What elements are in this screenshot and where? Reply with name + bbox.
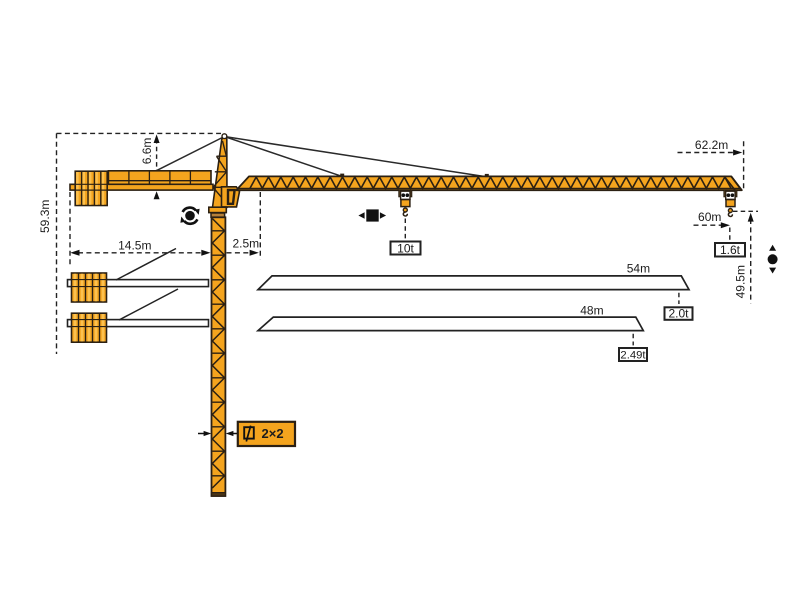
svg-text:14.5m: 14.5m: [118, 239, 151, 253]
svg-text:1.6t: 1.6t: [720, 243, 741, 257]
svg-text:59.3m: 59.3m: [38, 200, 52, 233]
svg-text:48m: 48m: [580, 303, 603, 317]
svg-text:54m: 54m: [627, 262, 650, 276]
svg-text:2×2: 2×2: [262, 426, 284, 441]
svg-text:2.5m: 2.5m: [232, 236, 259, 250]
svg-text:2.49t: 2.49t: [620, 349, 646, 361]
svg-text:6.6m: 6.6m: [140, 138, 154, 165]
svg-text:62.2m: 62.2m: [695, 138, 728, 152]
svg-text:10t: 10t: [397, 241, 414, 255]
svg-text:60m: 60m: [698, 210, 721, 224]
svg-text:2.0t: 2.0t: [668, 307, 689, 321]
svg-text:49.5m: 49.5m: [733, 265, 747, 298]
